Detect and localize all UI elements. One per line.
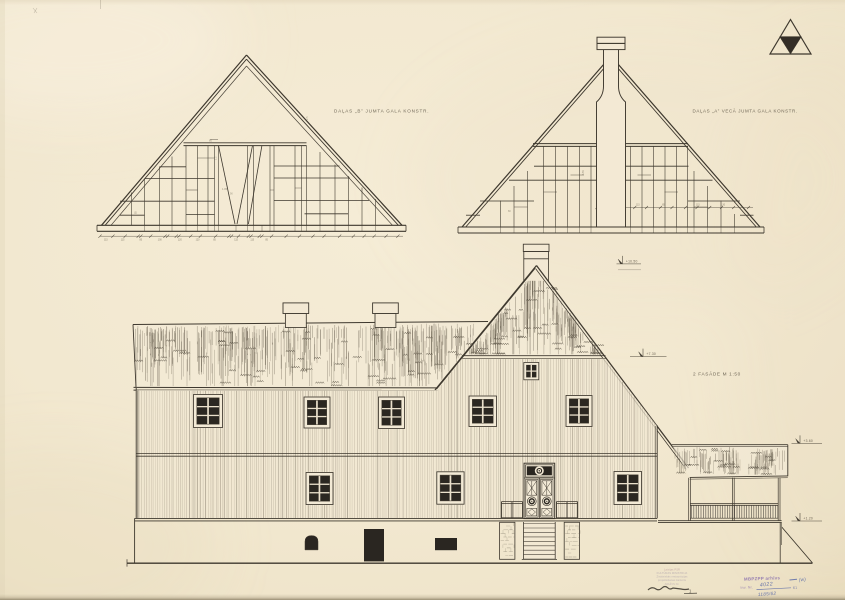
svg-text:1.30: 1.30 — [721, 205, 726, 207]
svg-text:DAĻAS „B” JUMTA GALA KONSTR.: DAĻAS „B” JUMTA GALA KONSTR. — [334, 109, 429, 114]
svg-text:Zinātniskās restaurācijas: Zinātniskās restaurācijas — [656, 575, 688, 579]
svg-text:Inv. Nr.: Inv. Nr. — [740, 585, 753, 589]
svg-text:+7.30: +7.30 — [646, 352, 656, 356]
svg-text:3.55: 3.55 — [582, 170, 585, 175]
svg-text:1.05: 1.05 — [222, 187, 228, 191]
svg-text:4022: 4022 — [760, 581, 774, 588]
svg-text:+10.50: +10.50 — [626, 259, 638, 263]
svg-text:+1.20: +1.20 — [803, 516, 813, 520]
svg-text:(w): (w) — [799, 577, 807, 584]
svg-text:KULTŪRAS MINISTRIJA: KULTŪRAS MINISTRIJA — [657, 571, 688, 575]
svg-text:projektēšanas kantoris: projektēšanas kantoris — [658, 578, 687, 582]
svg-text:61: 61 — [793, 586, 798, 590]
svg-text:1.2: 1.2 — [215, 156, 218, 160]
svg-text:+3.60: +3.60 — [803, 439, 813, 443]
svg-text:60: 60 — [209, 139, 213, 143]
svg-text:2 FASĀDE M 1:50: 2 FASĀDE M 1:50 — [693, 371, 741, 377]
svg-text:ARHĪVS Nr.: ARHĪVS Nr. — [665, 582, 680, 586]
svg-text:DAĻAS „A” VECĀ JUMTA GALA KONS: DAĻAS „A” VECĀ JUMTA GALA KONSTR. — [693, 108, 798, 114]
svg-text:Latvijas PSR: Latvijas PSR — [664, 568, 680, 572]
svg-text:2.5: 2.5 — [306, 116, 309, 120]
